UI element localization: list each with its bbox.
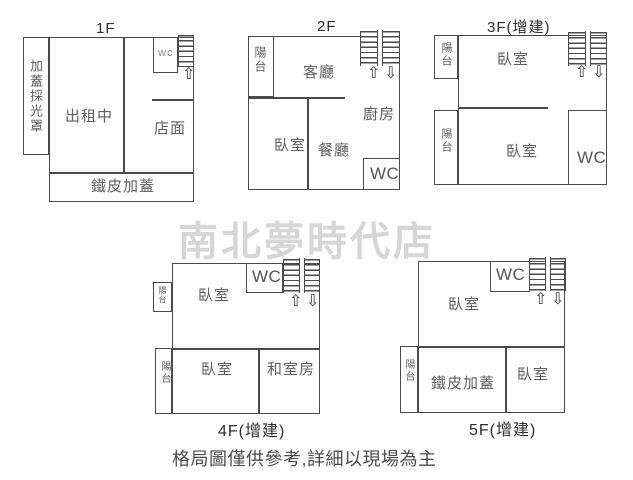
room-label-kitchen: 廚房	[363, 106, 395, 123]
floor-3f-inner-wall-h	[458, 107, 548, 109]
room-label-bedroom-bottom-4f: 臥室	[201, 361, 233, 378]
up-arrow-icon: ⇧	[367, 65, 380, 81]
room-label-rental: 出租中	[65, 108, 113, 125]
room-label-metal-roof-1f: 鐵皮加蓋	[91, 178, 155, 195]
room-label-bedroom-bottom-3f: 臥室	[506, 143, 538, 160]
room-label-bedroom-top-3f: 臥室	[497, 51, 529, 68]
stairs-icon	[178, 35, 194, 67]
down-arrow-icon: ⇩	[551, 291, 564, 307]
room-label-metal-roof-5f: 鐵皮加蓋	[431, 375, 495, 392]
floor-2f-inner-wall-h	[248, 97, 345, 99]
room-label-skylight: 加蓋採光罩	[29, 59, 42, 134]
room-label-dining: 餐廳	[318, 142, 350, 159]
floor-title-2f: 2F	[317, 18, 337, 35]
room-label-balcony-top-4f: 陽台	[158, 286, 166, 304]
room-label-wc-3f: WC	[577, 148, 606, 168]
down-arrow-icon: ⇩	[306, 293, 319, 309]
caption: 格局圖僅供參考,詳細以現場為主	[172, 445, 437, 471]
stairs-icon	[283, 259, 320, 293]
up-arrow-icon: ⇧	[534, 291, 547, 307]
down-arrow-icon: ⇩	[384, 65, 397, 81]
floor-1f-store-wall	[152, 99, 194, 101]
floor-title-3f: 3F(增建)	[487, 16, 551, 37]
room-label-wc-1f: wc	[158, 47, 173, 60]
floor-2f-inner-wall-v	[307, 97, 309, 190]
down-arrow-icon: ⇩	[592, 64, 605, 80]
room-label-balcony-bottom-3f: 陽台	[440, 128, 451, 154]
room-label-balcony-2f: 陽台	[254, 46, 266, 74]
room-label-bedroom-2f: 臥室	[274, 137, 306, 154]
stairs-icon	[568, 32, 607, 66]
floorplan-canvas: 1F ⇧ 加蓋採光罩 出租中 wc 店面 鐵皮加蓋 2F ⇧ ⇩ 陽台 客廳 廚…	[0, 0, 633, 480]
room-label-wc-4f: WC	[252, 267, 281, 287]
room-label-tatami: 和室房	[267, 361, 315, 378]
up-arrow-icon: ⇧	[182, 66, 195, 82]
floor-1f-inner-wall	[123, 37, 125, 173]
room-label-wc-2f: WC	[370, 164, 399, 184]
room-label-living: 客廳	[303, 64, 335, 81]
room-label-store: 店面	[154, 120, 186, 137]
floor-4f-inner-wall-h	[172, 348, 320, 350]
room-label-bedroom-bottom-5f: 臥室	[517, 366, 549, 383]
up-arrow-icon: ⇧	[289, 293, 302, 309]
floor-title-4f: 4F(增建)	[218, 417, 285, 441]
room-label-bedroom-top-4f: 臥室	[198, 287, 230, 304]
floor-5f-inner-wall-v	[505, 346, 507, 413]
room-label-balcony-5f: 陽台	[403, 359, 413, 383]
floor-4f-inner-wall-v	[258, 348, 260, 414]
room-label-balcony-top-3f: 陽台	[440, 42, 451, 68]
stairs-icon	[529, 258, 566, 291]
floor-5f-inner-wall-h	[418, 346, 565, 348]
room-label-bedroom-top-5f: 臥室	[448, 296, 480, 313]
room-label-balcony-bottom-4f: 陽台	[159, 361, 169, 385]
floor-title-5f: 5F(增建)	[469, 416, 536, 440]
stairs-icon	[360, 31, 400, 66]
floor-title-1f: 1F	[96, 20, 116, 37]
up-arrow-icon: ⇧	[575, 64, 588, 80]
room-label-wc-5f: WC	[496, 265, 525, 285]
